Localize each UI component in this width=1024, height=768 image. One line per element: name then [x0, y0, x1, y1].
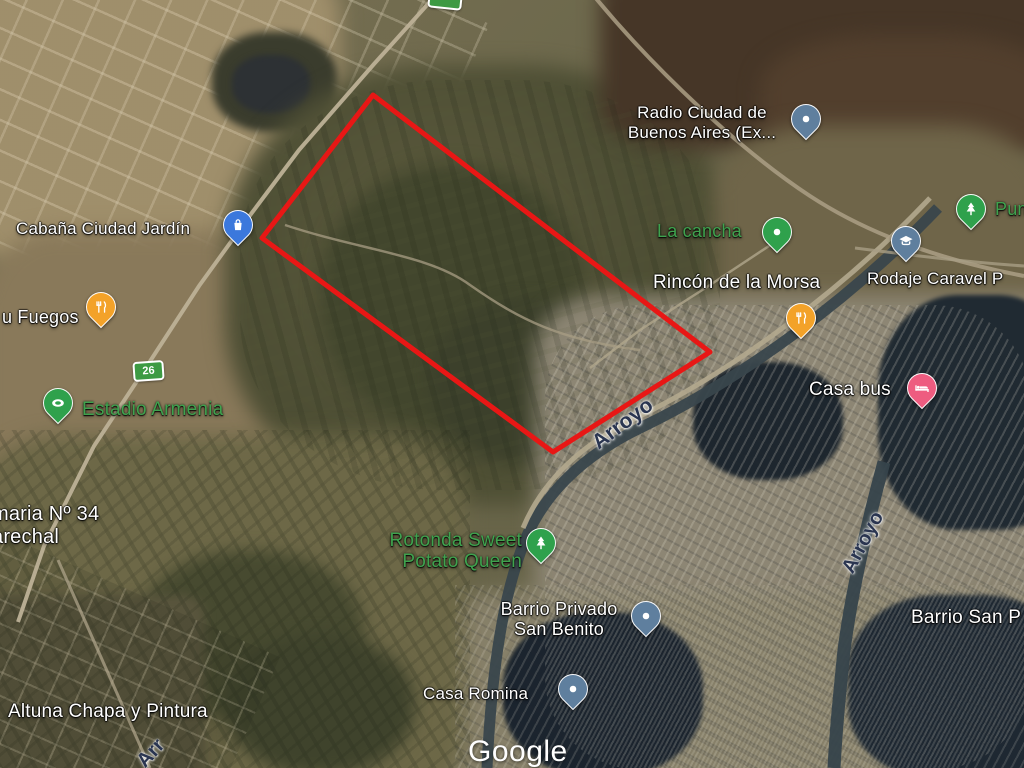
- place-label-estadio-armenia[interactable]: Estadio Armenia: [82, 399, 223, 421]
- place-label-barrio-san[interactable]: Barrio San P: [911, 607, 1021, 629]
- google-watermark: Google: [468, 735, 568, 768]
- location-dot-icon: [559, 675, 587, 703]
- place-label-rotonda[interactable]: Rotonda Sweet Potato Queen: [368, 530, 522, 572]
- place-label-u-fuegos[interactable]: u Fuegos: [2, 307, 79, 328]
- bed-icon: [908, 374, 936, 402]
- place-label-casa-bus[interactable]: Casa bus: [809, 379, 891, 401]
- road-along-canal: [523, 198, 930, 528]
- shopping-bag-icon: [224, 211, 252, 239]
- place-label-punta[interactable]: Pun: [995, 199, 1024, 220]
- road-bottomleft: [58, 560, 150, 768]
- place-label-cabana-ciudad-jardin[interactable]: Cabaña Ciudad Jardín: [16, 219, 190, 239]
- arroyo-canal-right: [834, 462, 884, 768]
- restaurant-icon: [787, 304, 815, 332]
- place-label-barrio-privado-san-benito[interactable]: Barrio Privado San Benito: [488, 599, 630, 639]
- place-label-radio-ciudad[interactable]: Radio Ciudad de Buenos Aires (Ex...: [612, 103, 792, 143]
- place-label-rincon-de-la-morsa[interactable]: Rincón de la Morsa: [653, 272, 820, 294]
- place-label-casa-romina[interactable]: Casa Romina: [423, 684, 528, 704]
- location-dot-icon: [632, 602, 660, 630]
- restaurant-icon: [87, 293, 115, 321]
- park-tree-icon: [957, 195, 985, 223]
- park-tree-icon: [527, 529, 555, 557]
- location-dot-icon: [792, 105, 820, 133]
- place-label-primaria-n34[interactable]: maria Nº 34 arechal: [0, 503, 99, 549]
- route-26-shield: 26: [132, 360, 164, 382]
- graduation-cap-icon: [892, 227, 920, 255]
- place-label-altuna[interactable]: Altuna Chapa y Pintura: [8, 701, 208, 723]
- location-dot-icon: [763, 218, 791, 246]
- route-26-label: 26: [142, 365, 155, 378]
- place-label-la-cancha[interactable]: La cancha: [657, 221, 742, 242]
- track-through-property: [285, 225, 640, 350]
- place-label-rodaje-caravel[interactable]: Rodaje Caravel P: [867, 269, 1003, 289]
- stadium-icon: [44, 389, 72, 417]
- satellite-map-canvas[interactable]: 26: [0, 0, 1024, 768]
